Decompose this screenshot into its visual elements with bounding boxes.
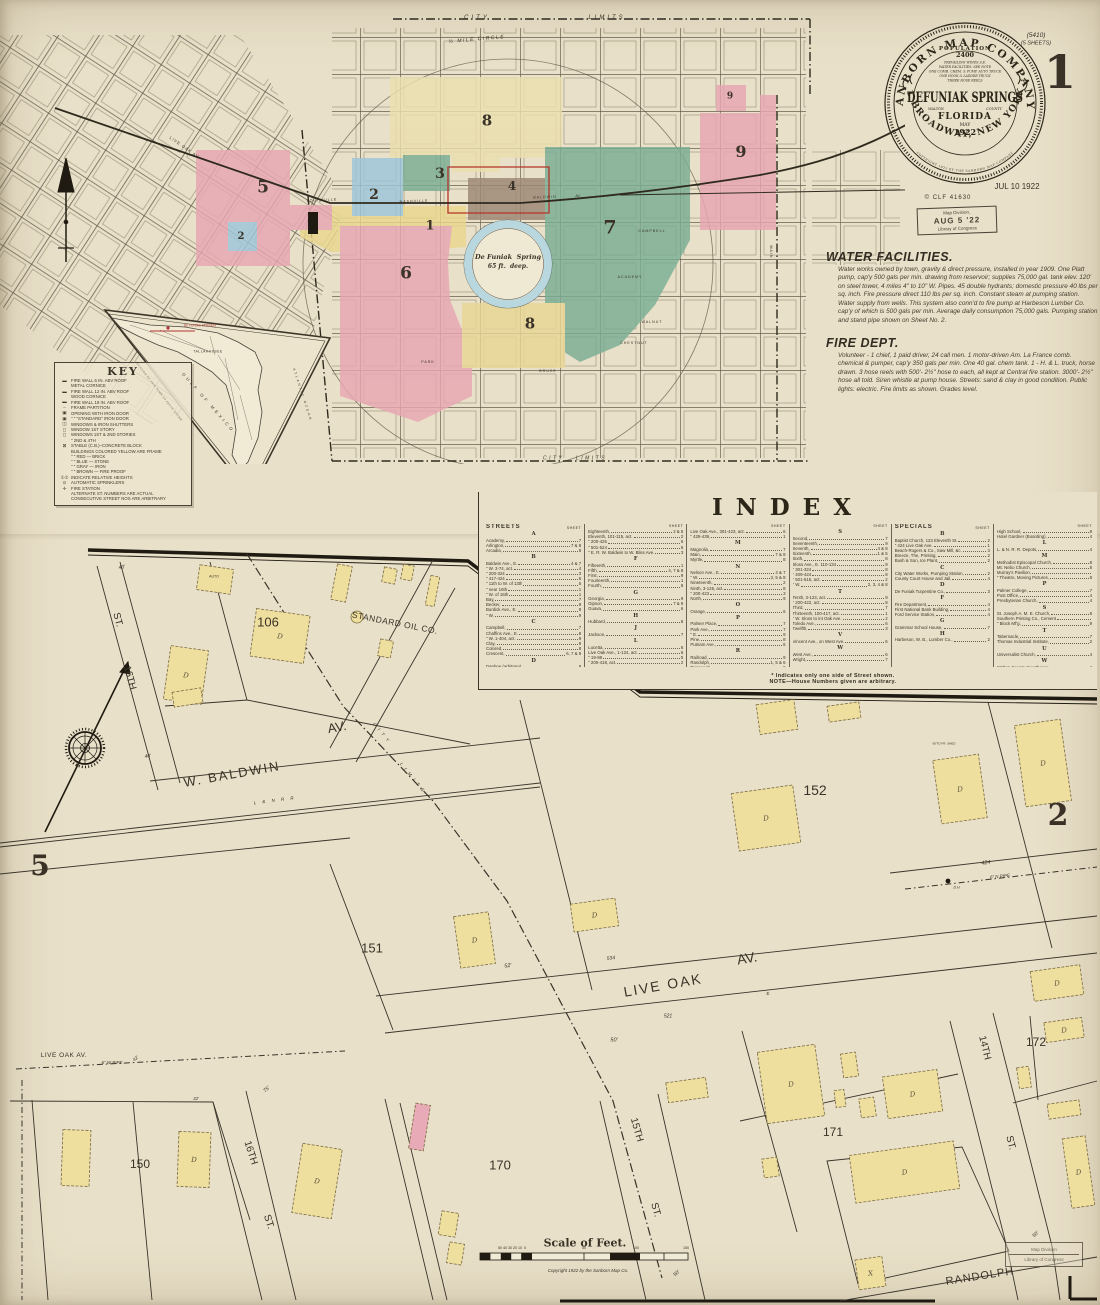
label-standard-oil: STANDARD OIL CO. xyxy=(351,610,438,635)
label-40-: 40' xyxy=(118,565,125,571)
label-st15-st: ST. xyxy=(648,1202,662,1219)
label-150: 150 xyxy=(683,1247,689,1251)
label-52-: 52' xyxy=(504,964,512,970)
label-city-limits-1: C I T Y xyxy=(372,722,391,744)
label-6-w-pipe: 6" W PIPE xyxy=(101,1061,122,1066)
label-live-oak-small: LIVE OAK AV. xyxy=(41,1053,87,1060)
label-60-to-fr-shed: 60'TO FR. SHED xyxy=(933,743,956,746)
label-block-171: 171 xyxy=(823,1126,843,1138)
label-st16l-st: ST. xyxy=(261,1214,275,1231)
label-40-: 40' xyxy=(144,754,151,760)
label-live-oak-av: AV. xyxy=(736,949,758,966)
label-city-limits-2: L I M I T S xyxy=(399,762,426,794)
label-50-40-30-20-10-0: 50 40 30 20 10 0 xyxy=(498,1247,526,1251)
label-st16l: 16TH xyxy=(241,1140,258,1166)
label-75-: 75' xyxy=(263,1086,271,1094)
label-6-n-pipe: 6" N PIPE xyxy=(990,874,1010,881)
label-32-: 32' xyxy=(193,1097,199,1102)
bottom-map-labels: ST.16TH40'AUTO106STANDARD OIL CO.W. BALD… xyxy=(0,0,1100,1305)
label-w-baldwin: W. BALDWIN xyxy=(183,759,282,789)
label-live-oak: LIVE OAK xyxy=(622,971,703,999)
label-block-150: 150 xyxy=(130,1158,150,1170)
label-copyright-line: Copyright 1922 by the Sanborn Map Co. xyxy=(548,1269,629,1274)
sanborn-map-sheet: DDDDDDDDDDXDDDDD xyxy=(0,0,1100,1305)
label-block-106: 106 xyxy=(257,616,279,629)
label-block-170: 170 xyxy=(489,1159,511,1172)
label-521: 521 xyxy=(664,1015,672,1020)
label-st14-st: ST. xyxy=(1003,1135,1016,1151)
label-50-: 50' xyxy=(673,1270,681,1278)
label-block-152: 152 xyxy=(803,783,826,797)
label-w-baldwin-av: AV. xyxy=(327,719,348,735)
label-50-: 50' xyxy=(1032,1231,1040,1239)
label-e: E xyxy=(766,992,769,997)
label-st14: 14TH xyxy=(976,1035,992,1061)
label-auto: AUTO xyxy=(209,575,219,579)
label-lnrr: L & N R R xyxy=(254,796,297,806)
label-534: 534 xyxy=(607,956,616,962)
label-st16u: 16TH xyxy=(121,665,137,691)
label-block-2: 2 xyxy=(1048,801,1069,831)
label-42-: 42' xyxy=(132,1055,139,1062)
label-50-: 50' xyxy=(610,1038,617,1044)
label-424: 424 xyxy=(981,861,991,868)
label-block-151: 151 xyxy=(361,942,383,955)
label-block-172: 172 xyxy=(1026,1036,1046,1048)
label-50: 50 xyxy=(582,1247,586,1251)
label-100: 100 xyxy=(633,1247,639,1251)
label-randolph: RANDOLPH xyxy=(945,1266,1015,1288)
label-st16u-st: ST. xyxy=(110,612,123,629)
label-d-h-: D.H. xyxy=(954,886,961,890)
label-st15: 15TH xyxy=(628,1117,644,1143)
label-block-5: 5 xyxy=(30,852,49,880)
